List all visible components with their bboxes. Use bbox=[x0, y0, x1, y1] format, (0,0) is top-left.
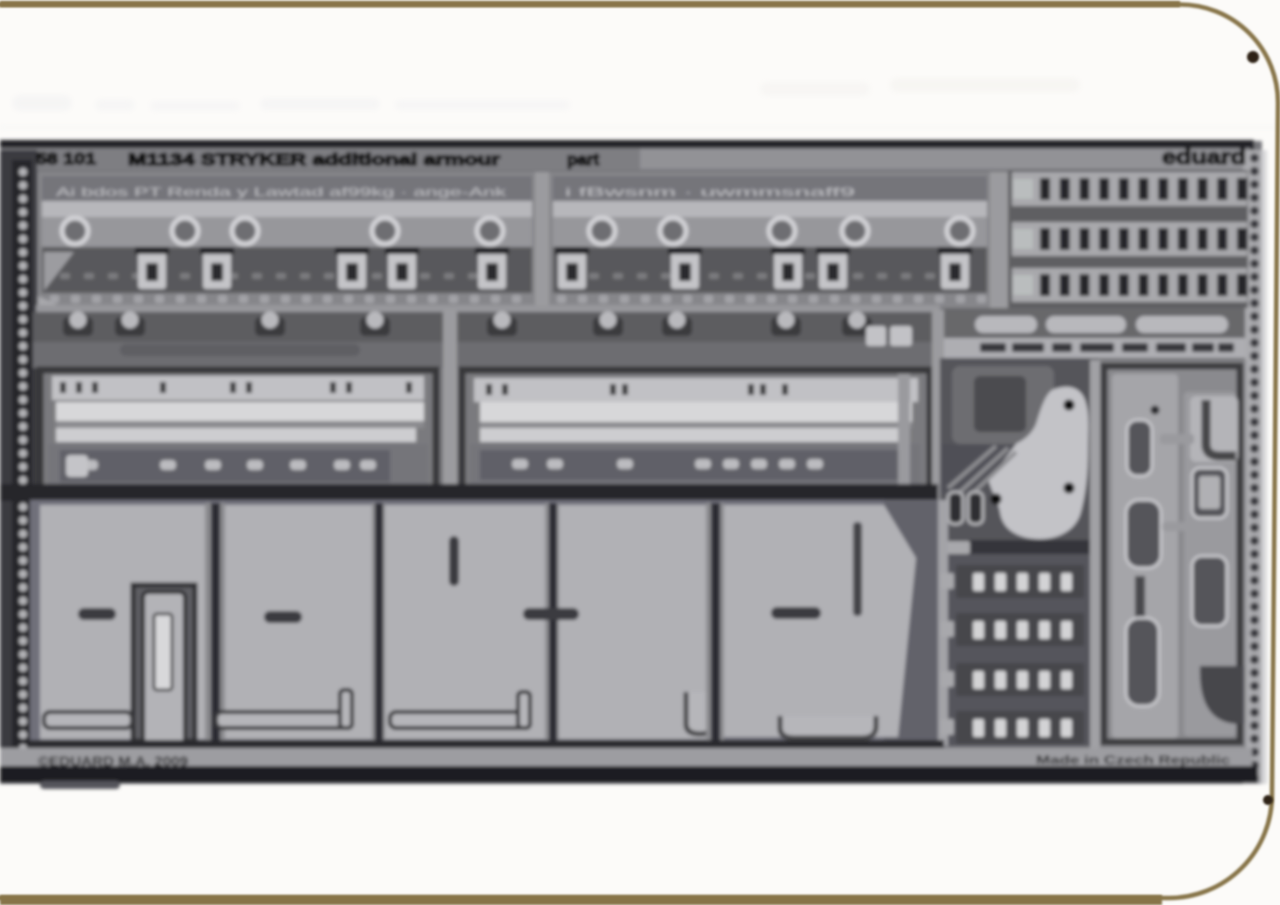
svg-text:Made in Czech Republic: Made in Czech Republic bbox=[1036, 753, 1230, 767]
svg-text:i fBwsnm · uwmmsnaff9: i fBwsnm · uwmmsnaff9 bbox=[565, 185, 856, 199]
svg-text:M1134 STRYKER additional armou: M1134 STRYKER additional armour bbox=[128, 150, 500, 169]
svg-text:58 101: 58 101 bbox=[36, 151, 96, 168]
svg-text:Ai bdos PT Renda y Lawtad af99: Ai bdos PT Renda y Lawtad af99kg · ange-… bbox=[56, 185, 508, 199]
svg-text:part: part bbox=[567, 150, 599, 169]
svg-text:eduard: eduard bbox=[1162, 146, 1246, 169]
